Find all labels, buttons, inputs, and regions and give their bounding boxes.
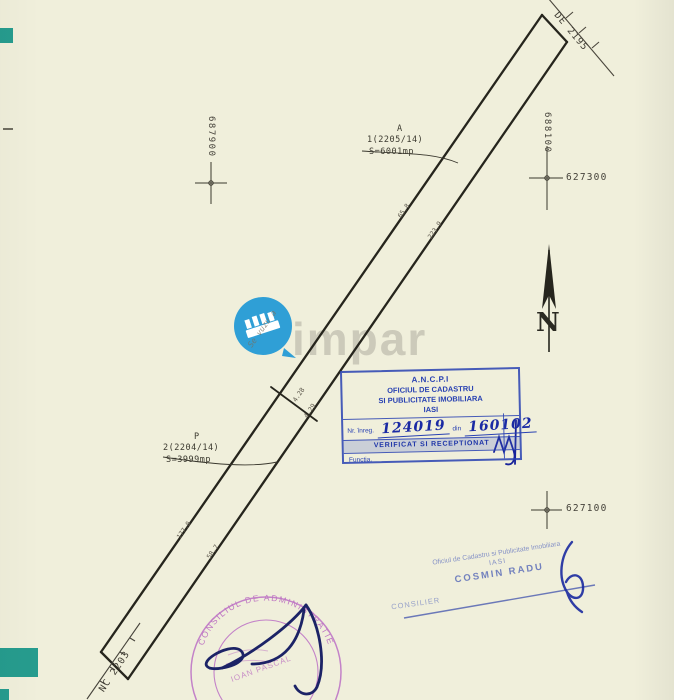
- teal-mark-corner: [0, 689, 9, 700]
- parcel-p-area: S=3999mp: [166, 455, 211, 465]
- north-label: N: [536, 308, 560, 338]
- ancpi-stamp: A.N.C.P.I OFICIUL DE CADASTRU SI PUBLICI…: [340, 367, 522, 464]
- teal-mark-top: [0, 28, 13, 43]
- parcel-a-letter: A: [397, 124, 403, 134]
- teal-mark-bottom: [0, 648, 38, 677]
- coord-label-627300: 627300: [566, 172, 608, 183]
- coord-label-688100: 688100: [542, 112, 552, 154]
- parcel-a-area: S=6001mp: [369, 147, 414, 157]
- parcel-p-letter: P: [194, 432, 200, 442]
- parcel-p-id: 2(2204/14): [163, 443, 219, 453]
- ancpi-right-column: [503, 413, 520, 458]
- parcel-a-id: 1(2205/14): [367, 135, 423, 145]
- ancpi-din-label: din: [452, 425, 461, 435]
- coord-label-627100: 627100: [566, 503, 608, 514]
- parcel-outline: [101, 15, 567, 679]
- coord-label-687900: 687900: [206, 116, 216, 158]
- ancpi-reg-label: Nr. înreg.: [347, 427, 374, 438]
- plan-drawing: CONSILIUL DE ADMINISTRATIE IOAN PASCAL: [0, 0, 674, 700]
- ancpi-reg-number: 124019: [377, 417, 450, 438]
- cadastral-plan-page: impar: [0, 0, 674, 700]
